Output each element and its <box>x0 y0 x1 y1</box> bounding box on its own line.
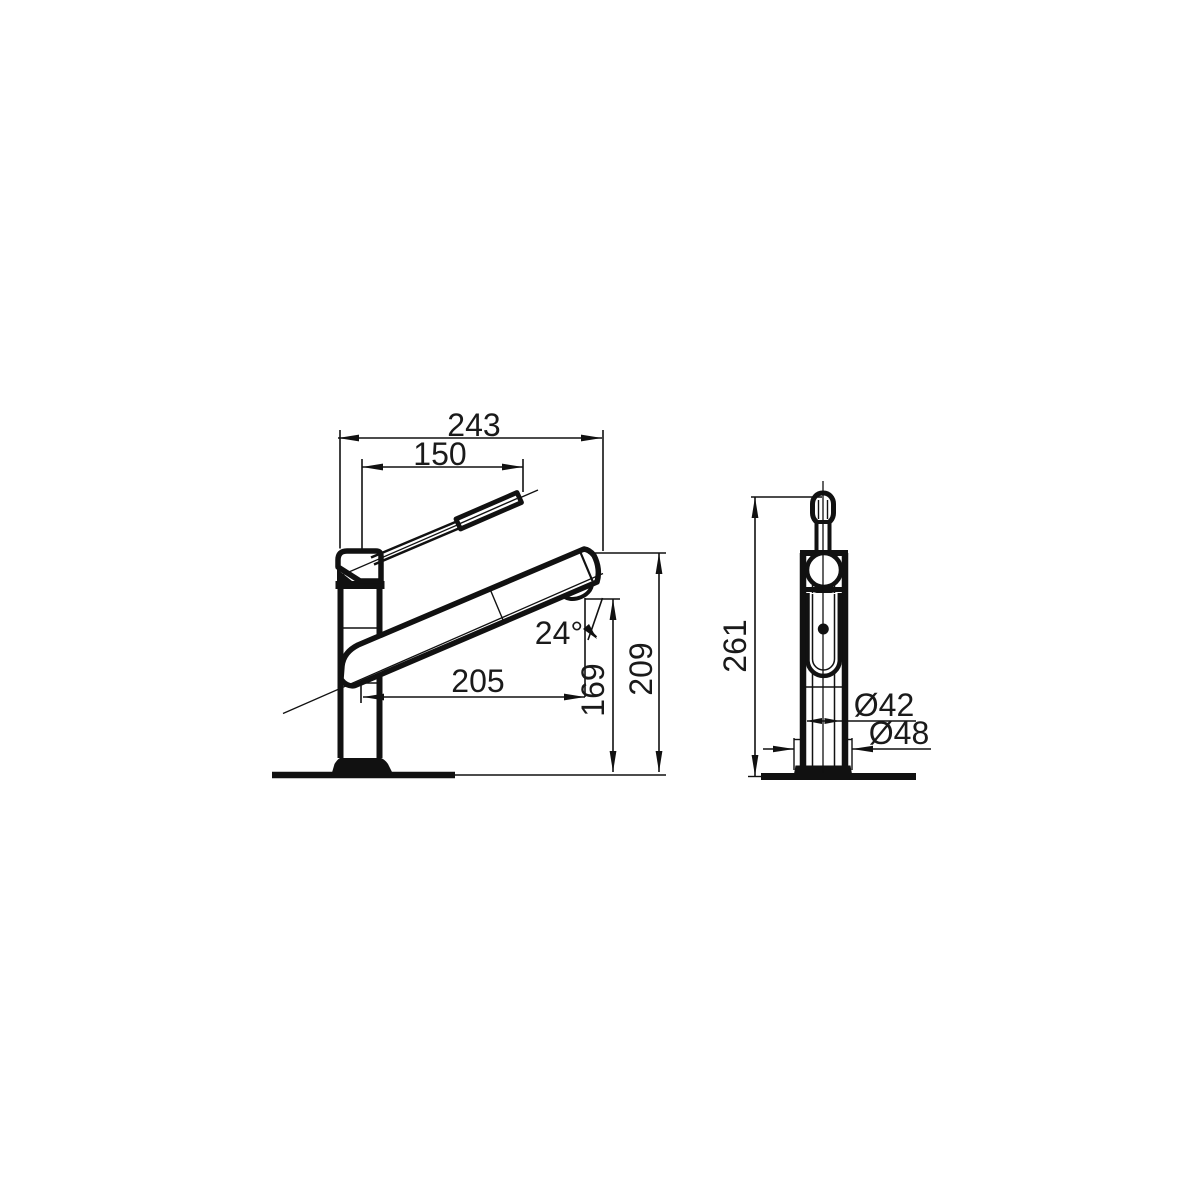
front-view: 261 Ø42 Ø48 <box>717 481 931 777</box>
base-flange-side <box>331 757 394 777</box>
dim-overall-height-label: 261 <box>717 619 753 672</box>
dim-lever-reach-label: 150 <box>413 436 466 472</box>
dimension-overall-reach: 243 <box>338 407 603 551</box>
side-view: 243 150 205 24° <box>272 407 666 776</box>
dim-spout-top-height-label: 209 <box>623 642 659 695</box>
lever-handle <box>342 490 538 575</box>
technical-drawing-page: 243 150 205 24° <box>0 0 1200 1200</box>
dim-spout-reach-label: 205 <box>451 663 504 699</box>
internal-detail-front <box>806 553 843 676</box>
dimension-spout-top-height: 209 <box>588 553 666 772</box>
faucet-dimension-drawing: 243 150 205 24° <box>0 0 1200 1200</box>
dim-base-diameter-label: Ø48 <box>869 715 929 751</box>
dim-outlet-height-label: 169 <box>575 663 611 716</box>
dim-spout-angle-label: 24° <box>535 615 583 651</box>
